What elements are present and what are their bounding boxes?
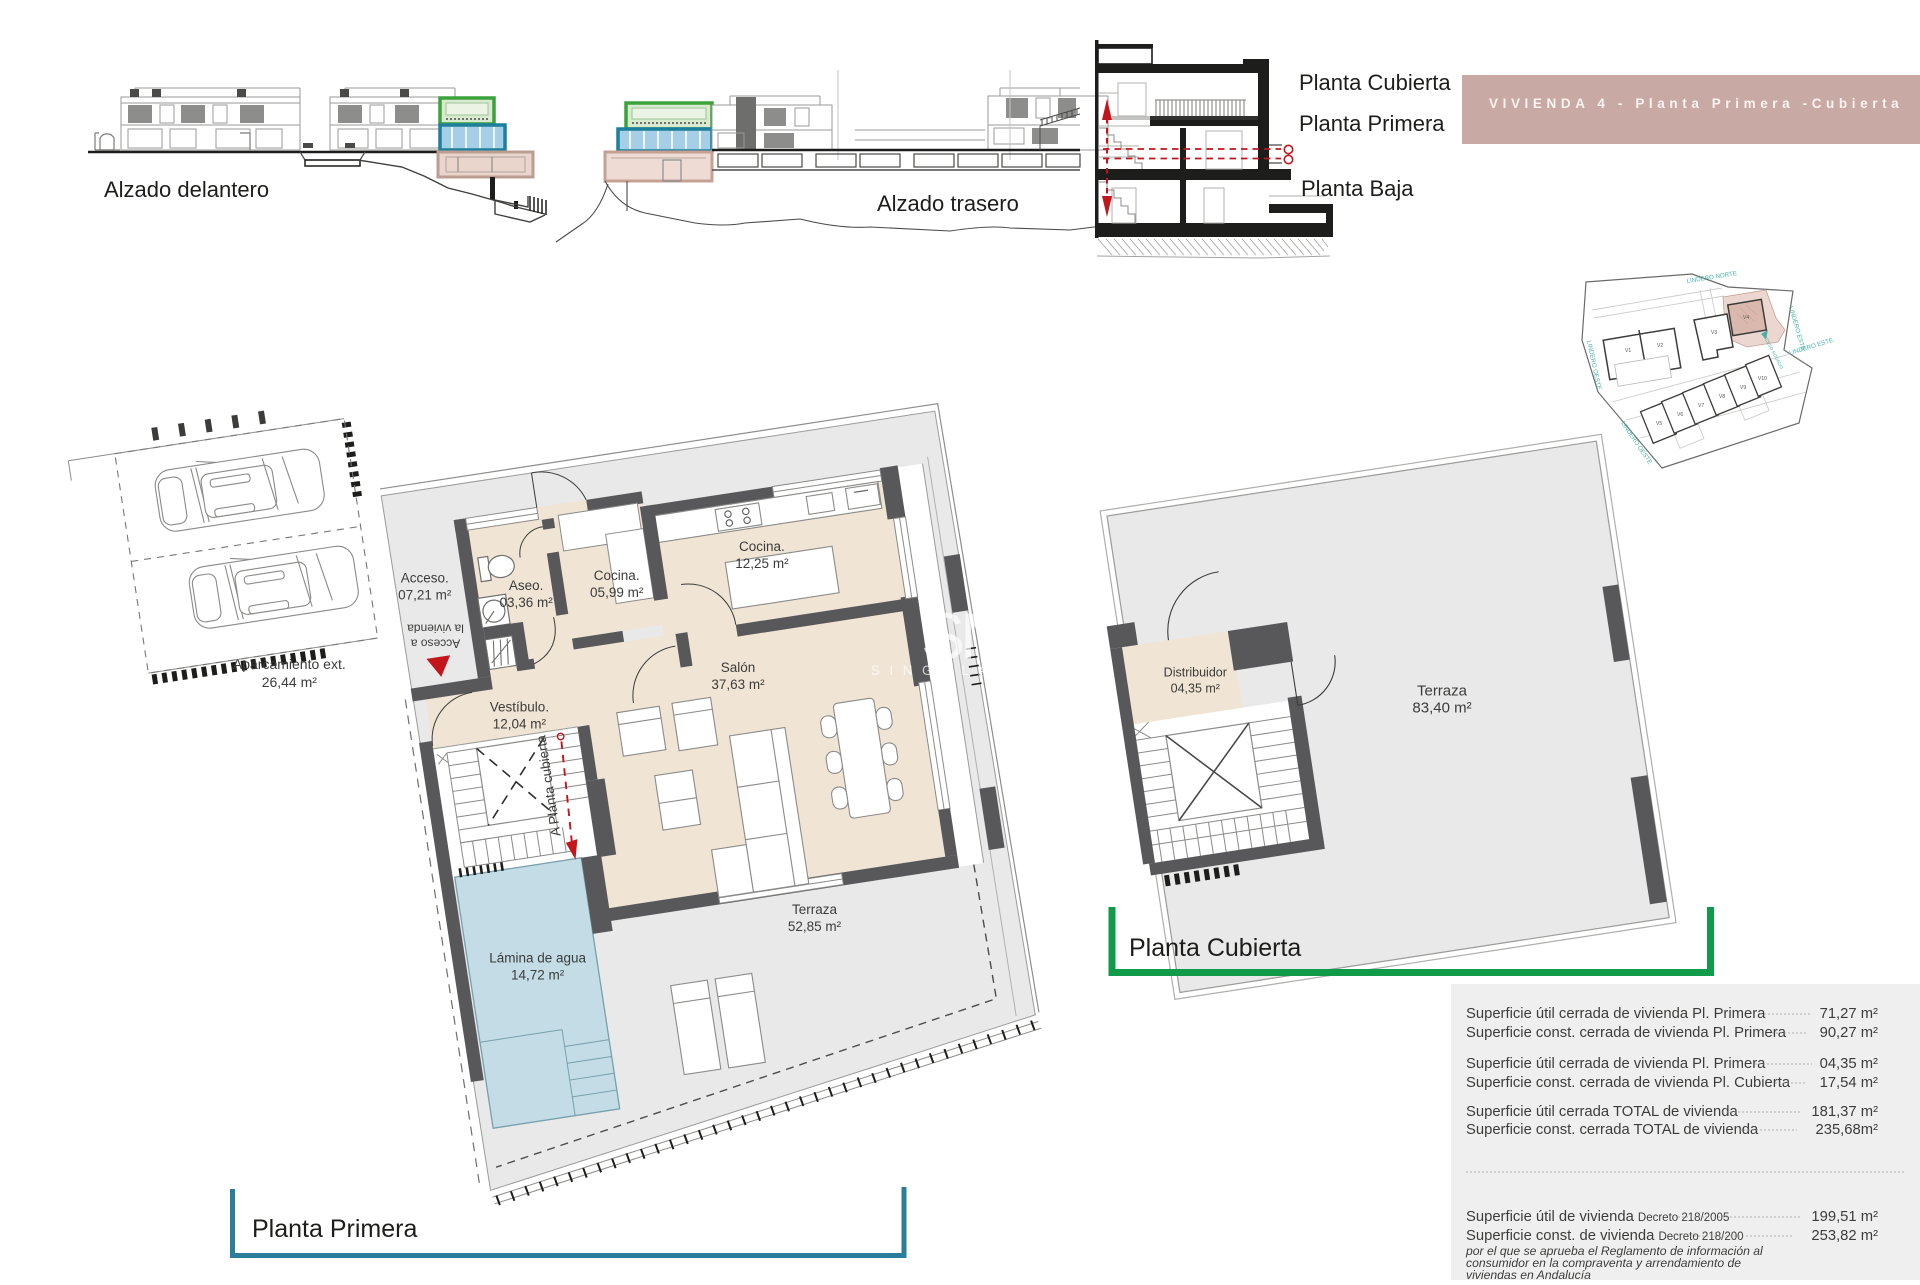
- svg-text:05,99 m²: 05,99 m²: [590, 585, 644, 600]
- svg-text:37,63 m²: 37,63 m²: [711, 677, 765, 692]
- svg-text:la vivienda: la vivienda: [407, 621, 464, 635]
- svg-text:03,36 m²: 03,36 m²: [499, 595, 553, 610]
- svg-text:Distribuidor: Distribuidor: [1164, 665, 1227, 679]
- svg-text:Planta Primera: Planta Primera: [1299, 111, 1445, 136]
- svg-text:Acceso.: Acceso.: [401, 570, 449, 585]
- svg-text:12,25 m²: 12,25 m²: [735, 556, 789, 571]
- svg-text:V9: V9: [1740, 385, 1746, 391]
- svg-text:V4: V4: [1743, 315, 1749, 321]
- svg-text:Acceso a: Acceso a: [411, 636, 461, 650]
- svg-text:12,04 m²: 12,04 m²: [493, 716, 547, 731]
- svg-text:Superficie const. cerrada de v: Superficie const. cerrada de vivienda Pl…: [1466, 1025, 1787, 1041]
- svg-text:Superficie útil cerrada de viv: Superficie útil cerrada de vivienda Pl. …: [1466, 1056, 1766, 1072]
- svg-text:V5: V5: [1656, 421, 1662, 427]
- svg-text:SINGULARIS: SINGULARIS: [871, 663, 1048, 678]
- svg-text:V8: V8: [1719, 394, 1725, 400]
- svg-text:Aparcamiento ext.: Aparcamiento ext.: [233, 656, 346, 672]
- svg-text:Planta Baja: Planta Baja: [1301, 176, 1414, 201]
- svg-text:52,85 m²: 52,85 m²: [788, 919, 842, 934]
- svg-text:235,68m²: 235,68m²: [1815, 1122, 1878, 1138]
- svg-text:Planta Primera: Planta Primera: [252, 1215, 417, 1243]
- svg-text:Superficie const. cerrada TOTA: Superficie const. cerrada TOTAL de vivie…: [1466, 1122, 1759, 1138]
- svg-text:Cocina.: Cocina.: [594, 568, 640, 583]
- svg-text:Superficie útil de vivienda De: Superficie útil de vivienda Decreto 218/…: [1466, 1209, 1729, 1225]
- svg-text:viviendas en Andalucía: viviendas en Andalucía: [1466, 1268, 1591, 1280]
- svg-text:Alzado delantero: Alzado delantero: [104, 177, 269, 202]
- svg-text:04,35 m²: 04,35 m²: [1171, 681, 1220, 695]
- svg-text:17,54 m²: 17,54 m²: [1820, 1075, 1878, 1091]
- svg-text:04,35 m²: 04,35 m²: [1820, 1056, 1878, 1072]
- svg-text:253,82 m²: 253,82 m²: [1811, 1228, 1878, 1244]
- svg-text:Cocina.: Cocina.: [739, 539, 785, 554]
- svg-text:Salón: Salón: [721, 660, 756, 675]
- svg-text:71,27 m²: 71,27 m²: [1820, 1006, 1878, 1022]
- svg-text:Terraza: Terraza: [1417, 682, 1468, 699]
- svg-text:Superficie útil cerrada de viv: Superficie útil cerrada de vivienda Pl. …: [1466, 1006, 1766, 1022]
- svg-text:Alzado trasero: Alzado trasero: [877, 191, 1019, 216]
- svg-text:Superficie const. de vivienda: Superficie const. de vivienda Decreto 21…: [1466, 1228, 1744, 1244]
- svg-text:Lámina de agua: Lámina de agua: [489, 951, 586, 966]
- svg-text:07,21 m²: 07,21 m²: [398, 587, 452, 602]
- svg-text:V2: V2: [1657, 343, 1663, 349]
- svg-text:90,27 m²: 90,27 m²: [1820, 1025, 1878, 1041]
- svg-text:S: S: [921, 599, 965, 673]
- svg-text:Superficie const. cerrada de v: Superficie const. cerrada de vivienda Pl…: [1466, 1075, 1791, 1091]
- svg-text:V1: V1: [1625, 348, 1631, 354]
- svg-text:Terraza: Terraza: [792, 902, 838, 917]
- svg-text:Planta Cubierta: Planta Cubierta: [1129, 934, 1301, 962]
- svg-text:181,37 m²: 181,37 m²: [1811, 1104, 1878, 1120]
- svg-text:V6: V6: [1677, 412, 1683, 418]
- svg-text:Planta Cubierta: Planta Cubierta: [1299, 70, 1451, 95]
- svg-text:V10: V10: [1758, 376, 1767, 382]
- svg-text:199,51 m²: 199,51 m²: [1811, 1209, 1878, 1225]
- svg-text:Vestíbulo.: Vestíbulo.: [490, 699, 549, 714]
- svg-text:14,72 m²: 14,72 m²: [511, 968, 565, 983]
- svg-text:V7: V7: [1698, 403, 1704, 409]
- svg-text:Superficie útil cerrada TOTAL: Superficie útil cerrada TOTAL de viviend…: [1466, 1104, 1738, 1120]
- svg-text:Aseo.: Aseo.: [509, 578, 544, 593]
- svg-text:V3: V3: [1711, 330, 1717, 336]
- svg-text:VIVIENDA 4 - Planta Primera -C: VIVIENDA 4 - Planta Primera -Cubierta: [1489, 96, 1903, 111]
- svg-text:26,44 m²: 26,44 m²: [262, 674, 318, 690]
- svg-text:N: N: [960, 599, 1008, 673]
- svg-text:83,40 m²: 83,40 m²: [1412, 699, 1471, 716]
